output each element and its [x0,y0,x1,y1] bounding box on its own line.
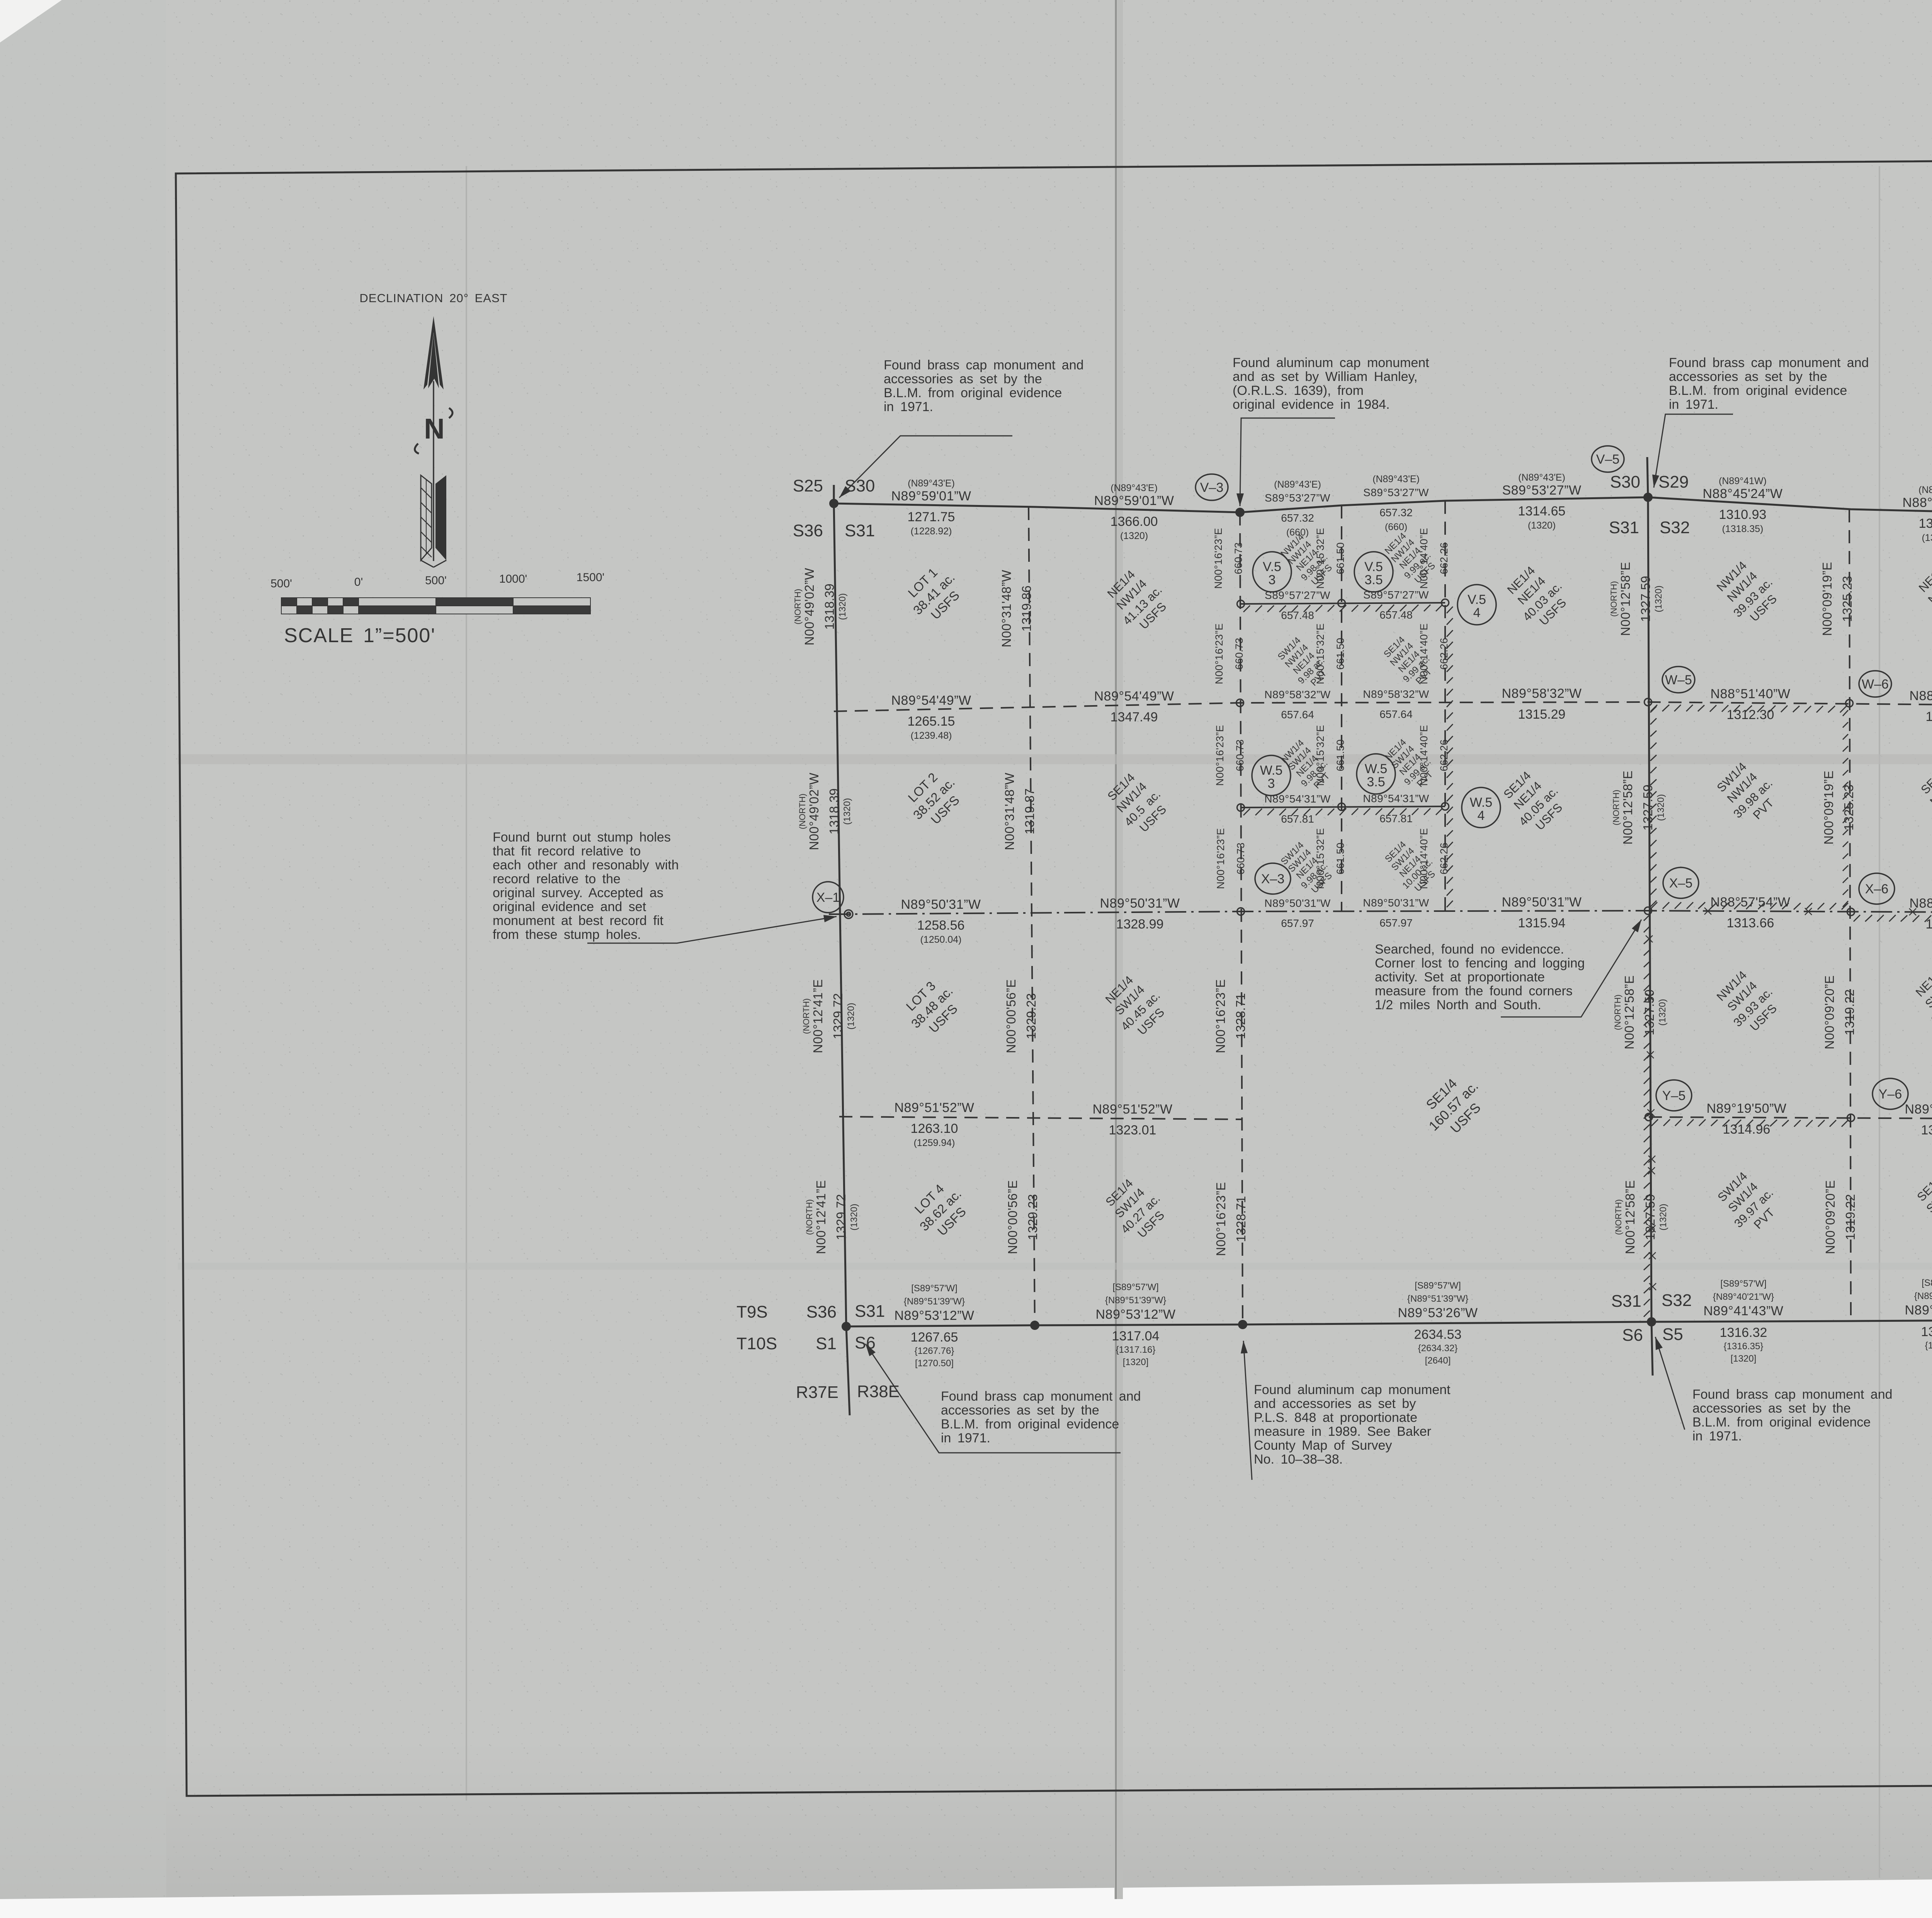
svg-text:1329.23: 1329.23 [1024,993,1038,1039]
svg-text:500': 500' [270,577,292,590]
svg-text:662.26: 662.26 [1438,740,1450,772]
svg-text:1310.93: 1310.93 [1919,516,1932,531]
svg-text:N00°09'20”E: N00°09'20”E [1822,975,1837,1049]
svg-text:657.48: 657.48 [1379,609,1413,621]
svg-text:N88°51'40”W: N88°51'40”W [1909,689,1932,703]
svg-text:660.73: 660.73 [1233,638,1245,670]
svg-text:1327.59: 1327.59 [1638,576,1653,622]
svg-text:1/2 miles North and South.: 1/2 miles North and South. [1375,998,1541,1012]
svg-text:1312.30: 1312.30 [1926,709,1932,724]
svg-text:1327.59: 1327.59 [1642,989,1656,1035]
svg-text:3: 3 [1268,776,1275,791]
svg-text:V–5: V–5 [1596,452,1620,467]
svg-text:1314.65: 1314.65 [1518,504,1566,519]
svg-text:Searched, found no evidencce.: Searched, found no evidencce. [1375,942,1564,957]
svg-text:accessories as set by the: accessories as set by the [884,372,1042,386]
svg-text:S29: S29 [1658,473,1689,491]
svg-text:N88°57'54”W: N88°57'54”W [1710,895,1790,910]
svg-text:1317.04: 1317.04 [1112,1329,1160,1343]
svg-text:N89°58'32”W: N89°58'32”W [1502,686,1582,701]
svg-text:1318.39: 1318.39 [822,583,837,629]
svg-text:(N89°43'E): (N89°43'E) [908,478,955,489]
svg-text:1313.66: 1313.66 [1926,917,1932,932]
svg-text:W.5: W.5 [1470,795,1493,810]
svg-text:(1318.35): (1318.35) [1922,532,1932,543]
svg-text:P.L.S. 848 at proportionate: P.L.S. 848 at proportionate [1254,1410,1417,1425]
svg-text:1263.10: 1263.10 [911,1121,958,1136]
svg-text:1328.71: 1328.71 [1233,993,1248,1039]
svg-text:(NORTH): (NORTH) [801,998,811,1034]
svg-text:B.L.M. from original evidence: B.L.M. from original evidence [1669,383,1847,398]
svg-text:S31: S31 [1611,1292,1641,1311]
svg-text:N00°16'23”E: N00°16'23”E [1213,623,1225,684]
svg-text:N: N [424,413,444,445]
svg-text:Y–5: Y–5 [1662,1088,1686,1103]
svg-text:(1320): (1320) [842,798,852,825]
svg-text:N89°41'43”W: N89°41'43”W [1905,1303,1932,1318]
svg-text:1325.23: 1325.23 [1842,784,1856,830]
svg-text:(NORTH): (NORTH) [1611,790,1621,825]
svg-text:original evidence and set: original evidence and set [493,899,646,914]
svg-text:1347.49: 1347.49 [1111,710,1158,724]
svg-text:(O.R.L.S. 1639), from: (O.R.L.S. 1639), from [1233,383,1364,398]
svg-text:T9S: T9S [736,1302,768,1321]
svg-text:(1228.92): (1228.92) [910,526,952,537]
svg-text:S25: S25 [793,476,823,495]
svg-text:660.73: 660.73 [1234,740,1246,772]
svg-text:measure from the found corners: measure from the found corners [1375,984,1573,998]
svg-text:1325.23: 1325.23 [1840,576,1854,622]
svg-text:X–6: X–6 [1865,882,1889,896]
svg-text:N89°41'43”W: N89°41'43”W [1703,1304,1783,1318]
svg-text:S32: S32 [1660,518,1690,537]
svg-text:Found burnt out stump holes: Found burnt out stump holes [493,830,671,845]
svg-text:(N89°43'E): (N89°43'E) [1372,474,1420,485]
svg-text:original survey. Accepted as: original survey. Accepted as [493,886,663,900]
svg-text:N00°12'41”E: N00°12'41”E [814,1180,828,1254]
svg-text:N00°49'02”W: N00°49'02”W [802,568,816,645]
svg-text:1329.72: 1329.72 [834,1194,848,1240]
svg-text:(1250.04): (1250.04) [920,934,961,945]
svg-text:W–5: W–5 [1665,673,1692,687]
svg-text:1258.56: 1258.56 [917,918,965,933]
svg-text:monument at best record fit: monument at best record fit [493,913,663,928]
svg-text:N00°49'02”W: N00°49'02”W [807,772,821,850]
svg-text:N89°54'31”W: N89°54'31”W [1264,793,1331,805]
svg-text:N89°50'31”W: N89°50'31”W [901,897,981,912]
svg-text:(N89°41W): (N89°41W) [1918,485,1932,495]
svg-text:[2640]: [2640] [1425,1355,1451,1366]
svg-text:S89°53'27”W: S89°53'27”W [1363,486,1429,498]
svg-text:{1316.35}: {1316.35} [1925,1340,1932,1351]
svg-text:N89°53'12”W: N89°53'12”W [1095,1307,1175,1322]
svg-text:N00°16'23”E: N00°16'23”E [1214,1182,1228,1256]
svg-text:Found aluminum cap monument: Found aluminum cap monument [1233,355,1429,370]
svg-text:in 1971.: in 1971. [941,1431,990,1445]
svg-text:{1316.35}: {1316.35} [1724,1341,1764,1352]
svg-text:(NORTH): (NORTH) [1609,581,1619,617]
svg-text:657.81: 657.81 [1281,813,1314,825]
svg-text:3: 3 [1269,573,1276,587]
svg-text:N89°51'52”W: N89°51'52”W [1092,1102,1172,1117]
svg-text:1329.72: 1329.72 [831,993,845,1039]
svg-text:activity. Set at proportionate: activity. Set at proportionate [1375,970,1545,985]
svg-text:DECLINATION 20° EAST: DECLINATION 20° EAST [359,291,507,305]
svg-text:1315.29: 1315.29 [1518,707,1566,722]
svg-text:(NORTH): (NORTH) [798,794,807,829]
svg-text:Found brass cap monument and: Found brass cap monument and [1669,355,1869,370]
svg-text:W.5: W.5 [1365,762,1388,776]
svg-text:S30: S30 [1610,473,1640,491]
svg-text:accessories as set by the: accessories as set by the [1692,1401,1851,1416]
svg-text:N00°12'58”E: N00°12'58”E [1618,562,1633,636]
svg-text:1267.65: 1267.65 [911,1330,958,1345]
svg-text:(1320): (1320) [1528,520,1556,531]
svg-text:Found aluminum cap monument: Found aluminum cap monument [1254,1382,1451,1397]
svg-text:in 1971.: in 1971. [1692,1429,1742,1444]
svg-text:N00°09'19”E: N00°09'19”E [1820,562,1834,636]
svg-text:N89°54'31”W: N89°54'31”W [1363,792,1429,804]
svg-text:N89°54'49”W: N89°54'49”W [891,693,971,708]
svg-text:[S89°57'W]: [S89°57'W] [1720,1279,1767,1289]
svg-text:N89°59'01”W: N89°59'01”W [891,489,971,503]
svg-text:X–5: X–5 [1669,876,1693,891]
svg-text:{N89°40'21”W}: {N89°40'21”W} [1914,1291,1932,1301]
svg-text:N00°12'41”E: N00°12'41”E [811,979,825,1053]
svg-text:662.26: 662.26 [1438,542,1450,575]
svg-text:N89°59'01”W: N89°59'01”W [1094,493,1174,508]
svg-text:(N89°41W): (N89°41W) [1719,476,1767,486]
svg-text:660.73: 660.73 [1233,542,1244,575]
svg-text:N00°09'19”E: N00°09'19”E [1821,770,1836,845]
svg-text:S89°53'27”W: S89°53'27”W [1502,483,1581,498]
svg-text:N00°00'56”E: N00°00'56”E [1004,979,1018,1053]
svg-text:S36: S36 [806,1302,837,1321]
svg-text:N00°31'48”W: N00°31'48”W [999,570,1014,647]
svg-text:original evidence in 1984.: original evidence in 1984. [1233,397,1390,412]
svg-text:in 1971.: in 1971. [884,400,933,414]
svg-text:[1270.50]: [1270.50] [915,1358,954,1369]
svg-text:record relative to the: record relative to the [493,872,621,886]
svg-text:2634.53: 2634.53 [1414,1327,1462,1342]
svg-text:657.32: 657.32 [1281,512,1314,524]
svg-text:{N89°51'39”W}: {N89°51'39”W} [1407,1294,1468,1304]
svg-text:(1320): (1320) [1657,999,1668,1025]
svg-text:S1: S1 [816,1334,837,1353]
svg-text:1329.23: 1329.23 [1026,1194,1040,1240]
svg-text:N88°57'54”W: N88°57'54”W [1909,896,1932,911]
svg-text:Found brass cap monument and: Found brass cap monument and [941,1389,1141,1404]
svg-text:S32: S32 [1662,1291,1692,1310]
svg-text:W–6: W–6 [1862,677,1889,692]
svg-text:N89°58'32”W: N89°58'32”W [1264,689,1331,701]
svg-text:V.5: V.5 [1468,592,1486,607]
svg-text:4: 4 [1478,808,1485,823]
svg-text:B.L.M. from original evidence: B.L.M. from original evidence [884,386,1062,400]
svg-text:S89°57'27”W: S89°57'27”W [1265,589,1330,601]
svg-text:662.26: 662.26 [1438,638,1450,670]
svg-text:N00°12'58”E: N00°12'58”E [1623,1180,1637,1254]
svg-text:N89°50'31”W: N89°50'31”W [1100,896,1180,911]
svg-text:N00°16'23”E: N00°16'23”E [1214,725,1226,786]
svg-text:1265.15: 1265.15 [908,714,955,729]
svg-text:N00°09'20”E: N00°09'20”E [1823,1180,1837,1254]
svg-text:X–3: X–3 [1261,872,1285,886]
svg-text:and as set by William Hanley,: and as set by William Hanley, [1233,369,1417,384]
svg-text:that fit record relative to: that fit record relative to [493,844,641,859]
svg-text:657.32: 657.32 [1379,507,1413,519]
svg-text:Found brass cap monument and: Found brass cap monument and [1692,1387,1893,1402]
svg-text:N00°16'23”E: N00°16'23”E [1215,828,1226,889]
svg-text:(660): (660) [1385,522,1407,532]
svg-text:1314.96: 1314.96 [1921,1123,1932,1138]
svg-text:[1320]: [1320] [1123,1357,1149,1367]
svg-text:{N89°40'21”W}: {N89°40'21”W} [1713,1292,1774,1302]
svg-text:N89°58'32”W: N89°58'32”W [1363,688,1429,700]
svg-text:1327.59: 1327.59 [1643,1194,1657,1240]
svg-text:B.L.M. from original evidence: B.L.M. from original evidence [1692,1415,1871,1430]
svg-text:1316.32: 1316.32 [1921,1325,1932,1339]
svg-text:{N89°51'39”W}: {N89°51'39”W} [904,1296,965,1307]
svg-text:Corner lost to fencing and log: Corner lost to fencing and logging [1375,956,1585,971]
svg-text:Found brass cap monument and: Found brass cap monument and [884,358,1084,372]
svg-text:(1320): (1320) [1656,794,1666,821]
svg-text:657.64: 657.64 [1379,708,1413,720]
svg-text:(1239.48): (1239.48) [910,730,952,741]
svg-text:657.97: 657.97 [1379,917,1413,929]
svg-text:S89°57'27”W: S89°57'27”W [1363,589,1429,601]
svg-text:{N89°51'39”W}: {N89°51'39”W} [1105,1295,1166,1306]
svg-text:(1320): (1320) [837,593,848,620]
svg-text:(1318.35): (1318.35) [1722,524,1763,534]
svg-text:in 1971.: in 1971. [1669,397,1718,412]
svg-text:{1317.16}: {1317.16} [1116,1345,1156,1355]
svg-text:S31: S31 [845,521,875,540]
svg-text:N00°16'23”E: N00°16'23”E [1213,528,1224,589]
svg-text:1323.01: 1323.01 [1109,1123,1156,1138]
svg-text:1319.86: 1319.86 [1019,585,1034,631]
svg-text:1000': 1000' [499,573,527,585]
svg-text:V.5: V.5 [1364,559,1383,574]
svg-text:accessories as set by the: accessories as set by the [1669,369,1827,384]
svg-text:S36: S36 [793,521,823,540]
svg-text:N00°12'58”E: N00°12'58”E [1621,770,1635,845]
svg-text:1328.71: 1328.71 [1234,1196,1248,1242]
svg-text:N89°53'26”W: N89°53'26”W [1398,1306,1478,1320]
svg-text:1310.93: 1310.93 [1719,507,1767,522]
svg-text:R37E: R37E [796,1383,838,1402]
svg-text:W.5: W.5 [1260,763,1283,778]
svg-text:V–3: V–3 [1200,480,1224,495]
svg-text:S31: S31 [1609,518,1639,537]
svg-text:657.97: 657.97 [1281,917,1314,929]
svg-text:N00°00'56”E: N00°00'56”E [1005,1180,1020,1254]
svg-text:(1320): (1320) [1120,531,1148,541]
svg-text:(N89°43'E): (N89°43'E) [1518,472,1565,483]
svg-text:(NORTH): (NORTH) [1613,995,1622,1030]
svg-text:accessories as set by the: accessories as set by the [941,1403,1099,1418]
svg-text:661.50: 661.50 [1335,542,1346,575]
svg-text:N89°19'50”W: N89°19'50”W [1706,1101,1786,1116]
svg-text:(1320): (1320) [846,1003,856,1029]
svg-text:N88°51'40”W: N88°51'40”W [1710,687,1790,701]
svg-text:S5: S5 [1662,1325,1683,1344]
svg-text:[S89°57'W]: [S89°57'W] [1112,1282,1159,1292]
svg-text:(NORTH): (NORTH) [793,589,803,624]
svg-text:3.5: 3.5 [1364,573,1383,587]
svg-text:660.73: 660.73 [1235,843,1247,875]
svg-text:(1259.94): (1259.94) [913,1138,955,1148]
svg-text:[S89°57'W]: [S89°57'W] [911,1283,957,1294]
svg-text:S6: S6 [1622,1326,1643,1345]
svg-text:(1320): (1320) [1658,1204,1668,1230]
svg-text:{2634.32}: {2634.32} [1418,1343,1458,1353]
svg-text:4: 4 [1473,605,1481,620]
svg-text:S31: S31 [855,1302,885,1321]
svg-text:T10S: T10S [736,1334,777,1353]
svg-text:N89°54'49”W: N89°54'49”W [1094,689,1174,704]
svg-text:N89°19'50”W: N89°19'50”W [1905,1102,1932,1117]
svg-text:N89°53'12”W: N89°53'12”W [894,1308,974,1323]
svg-text:N88°45'24”W: N88°45'24”W [1702,486,1782,501]
svg-text:661.50: 661.50 [1335,740,1346,772]
svg-text:N89°50'31”W: N89°50'31”W [1502,895,1582,910]
svg-text:and accessories as set by: and accessories as set by [1254,1396,1416,1411]
svg-text:0': 0' [354,576,363,588]
svg-text:S89°53'27”W: S89°53'27”W [1265,492,1330,504]
svg-text:1313.66: 1313.66 [1727,916,1774,930]
svg-text:657.48: 657.48 [1281,609,1314,621]
svg-text:1315.94: 1315.94 [1518,916,1566,930]
svg-text:N89°50'31”W: N89°50'31”W [1363,897,1429,909]
svg-text:500': 500' [425,574,447,587]
svg-text:661.50: 661.50 [1335,638,1346,670]
svg-text:No. 10–38–38.: No. 10–38–38. [1254,1452,1343,1467]
svg-text:N88°45'24”W: N88°45'24”W [1902,495,1932,510]
svg-text:from these stump holes.: from these stump holes. [493,927,641,942]
svg-text:1319.22: 1319.22 [1843,1194,1857,1240]
svg-text:657.64: 657.64 [1281,709,1314,721]
svg-text:S6: S6 [855,1333,876,1352]
svg-text:[1320]: [1320] [1731,1353,1757,1364]
svg-text:657.81: 657.81 [1379,813,1413,825]
svg-text:1271.75: 1271.75 [908,510,955,524]
svg-text:1312.30: 1312.30 [1727,707,1774,722]
svg-text:N89°51'52”W: N89°51'52”W [894,1100,974,1115]
svg-text:(NORTH): (NORTH) [1614,1199,1623,1235]
svg-text:1314.96: 1314.96 [1723,1122,1770,1137]
svg-text:1500': 1500' [577,571,604,584]
svg-text:B.L.M. from original evidence: B.L.M. from original evidence [941,1417,1119,1432]
svg-text:3.5: 3.5 [1367,775,1385,789]
svg-text:S30: S30 [845,476,875,495]
svg-text:N00°12'58”E: N00°12'58”E [1622,975,1636,1049]
svg-text:661.50: 661.50 [1335,843,1346,875]
svg-text:1319.22: 1319.22 [1842,989,1857,1035]
svg-text:each other and resonably with: each other and resonably with [493,858,679,872]
svg-text:(1320): (1320) [849,1204,859,1230]
svg-text:X–1: X–1 [816,890,840,905]
svg-text:[S89°57'W]: [S89°57'W] [1922,1278,1932,1288]
svg-text:(N89°43'E): (N89°43'E) [1274,479,1321,490]
svg-text:{1267.76}: {1267.76} [915,1346,954,1356]
svg-text:Y–6: Y–6 [1879,1087,1902,1102]
svg-text:V.5: V.5 [1263,559,1281,574]
svg-text:[S89°57'W]: [S89°57'W] [1415,1280,1461,1291]
svg-text:1316.32: 1316.32 [1720,1325,1767,1340]
svg-text:1318.39: 1318.39 [827,788,841,834]
svg-text:1319.87: 1319.87 [1022,788,1037,834]
svg-text:1366.00: 1366.00 [1111,514,1158,529]
svg-text:(N89°43'E): (N89°43'E) [1111,483,1158,493]
svg-text:(NORTH): (NORTH) [804,1199,814,1235]
svg-text:SCALE 1”=500': SCALE 1”=500' [284,624,435,647]
svg-text:measure in 1989. See Baker: measure in 1989. See Baker [1254,1424,1431,1439]
svg-text:(1320): (1320) [1653,585,1664,612]
svg-text:N89°50'31”W: N89°50'31”W [1264,897,1331,909]
svg-text:County Map of Survey: County Map of Survey [1254,1438,1392,1453]
svg-text:N00°16'23”E: N00°16'23”E [1213,979,1228,1053]
svg-text:1328.99: 1328.99 [1116,917,1164,932]
svg-text:1327.59: 1327.59 [1641,784,1655,830]
svg-text:662.26: 662.26 [1438,843,1450,875]
svg-text:N00°31'48”W: N00°31'48”W [1002,772,1017,850]
